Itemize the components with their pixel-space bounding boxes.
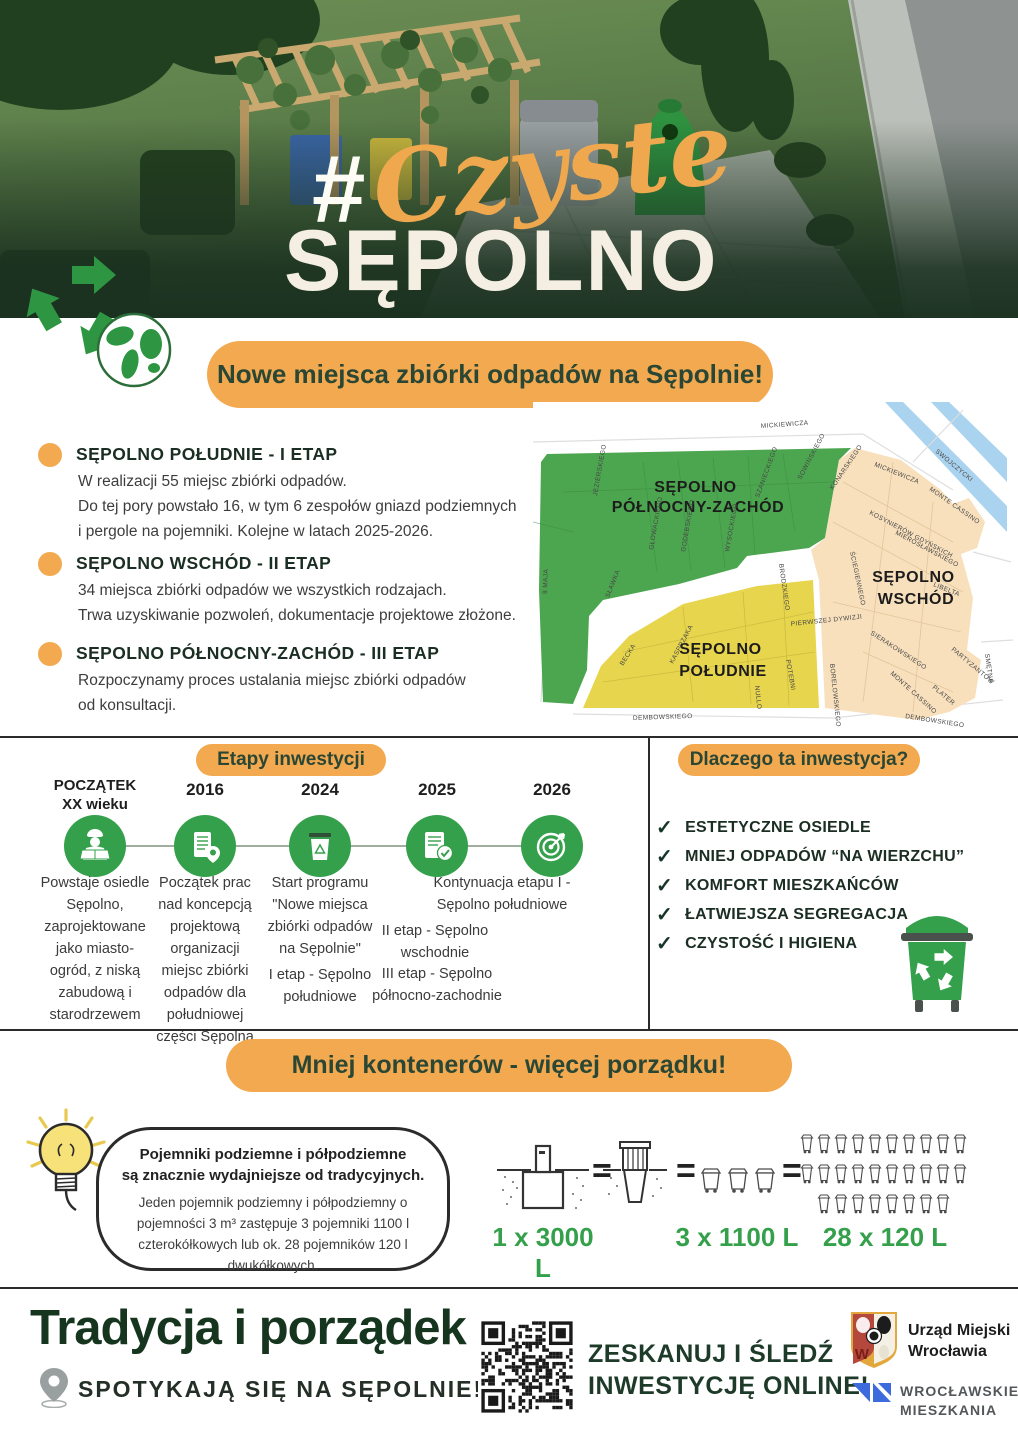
stage-2-body: 34 miejsca zbiórki odpadów we wszystkich… (78, 578, 516, 628)
timeline-title: Etapy inwestycji (196, 744, 386, 776)
stage-2-heading: SĘPOLNO WSCHÓD - II ETAP (76, 553, 331, 574)
stage-3-body: Rozpoczynamy proces ustalania miejsc zbi… (78, 668, 466, 718)
wroclaw-crest-logo: W (849, 1310, 899, 1370)
stage-bullet (38, 552, 62, 576)
less-title: Mniej kontenerów - więcej porządku! (226, 1039, 792, 1092)
equals-sign: = (676, 1152, 696, 1190)
why-item: ✓MNIEJ ODPADÓW “NA WIERZCHU” (656, 842, 986, 871)
timeline-text-2: Start programu "Nowe miejsca zbiórki odp… (252, 872, 388, 960)
scan-text: ZESKANUJ I ŚLEDŹ INWESTYCJĘ ONLINE! (588, 1338, 869, 1402)
check-icon: ✓ (656, 844, 673, 869)
location-pin-icon (36, 1366, 72, 1408)
green-wheelie-bin-icon (894, 902, 980, 1016)
label-3000l: 1 x 3000 L (483, 1222, 603, 1284)
timeline-text-3b: II etap - Sępolno wschodnie (370, 920, 500, 964)
banner-headline: Nowe miejsca zbiórki odpadów na Sępolnie… (207, 341, 773, 408)
check-icon: ✓ (656, 815, 673, 840)
why-item: ✓KOMFORT MIESZKAŃCÓW (656, 871, 986, 900)
check-icon: ✓ (656, 931, 673, 956)
bins-1100-group (702, 1169, 774, 1193)
poster: # Czyste SĘPOLNO Nowe miejsca zbiórki od… (0, 0, 1018, 1440)
construction-worker-icon (64, 815, 126, 877)
check-icon: ✓ (656, 873, 673, 898)
divider (0, 1029, 1018, 1031)
timeline-year-2: 2024 (260, 780, 380, 799)
label-1100l: 3 x 1100 L (675, 1222, 799, 1253)
svg-text:8 MAJA: 8 MAJA (542, 568, 550, 594)
page-title: SĘPOLNO (284, 218, 719, 304)
wroclawskie-mieszkania-logo (851, 1380, 893, 1408)
timeline-text-3: Kontynuacja etapu I - Sępolno południowe (412, 872, 592, 916)
timeline-year-1: 2016 (145, 780, 265, 799)
why-item: ✓ESTETYCZNE OSIEDLE (656, 813, 986, 842)
crest-letter: W (855, 1346, 870, 1363)
tip-bubble: Pojemniki podziemne i półpodziemne są zn… (96, 1127, 450, 1271)
timeline-text-3c: III etap - Sępolno północno-zachodnie (366, 963, 508, 1007)
globe-icon (98, 314, 170, 386)
equals-sign: = (782, 1152, 802, 1190)
divider-vertical (648, 737, 650, 1029)
qr-code (478, 1318, 576, 1416)
check-icon: ✓ (656, 902, 673, 927)
timeline-year-4: 2026 (492, 780, 612, 799)
capacity-comparison: = = = (495, 1128, 995, 1224)
stage-1-body: W realizacji 55 miejsc zbiórki odpadów. … (78, 469, 517, 544)
target-icon (521, 815, 583, 877)
timeline-year-3: 2025 (377, 780, 497, 799)
wm-logo-text: WROCŁAWSKIE MIESZKANIA (900, 1382, 1018, 1420)
underground-container-icon (497, 1146, 589, 1209)
checklist-icon (406, 815, 468, 877)
stage-bullet (38, 642, 62, 666)
stage-3-heading: SĘPOLNO PÓŁNOCNY-ZACHÓD - III ETAP (76, 643, 439, 664)
bins-120-group (802, 1135, 966, 1213)
semi-underground-container-icon (603, 1142, 667, 1202)
districts-map: SĘPOLNO PÓŁNOCNY-ZACHÓD SĘPOLNO WSCHÓD S… (533, 402, 1018, 735)
tip-bold-text: Pojemniki podziemne i półpodziemne są zn… (119, 1144, 427, 1186)
divider (0, 1287, 1018, 1289)
stage-1-heading: SĘPOLNO POŁUDNIE - I ETAP (76, 444, 338, 465)
city-logo-text: Urząd Miejski Wrocławia (908, 1320, 1010, 1362)
timeline-text-1: Początek prac nad koncepcją projektową o… (142, 872, 268, 1048)
label-120l: 28 x 120 L (820, 1222, 950, 1253)
footer-headline: Tradycja i porządek (30, 1304, 466, 1353)
footer-subline: SPOTYKAJĄ SIĘ NA SĘPOLNIE! (78, 1376, 483, 1403)
tip-body-text: Jeden pojemnik podziemny i półpodziemny … (125, 1192, 421, 1276)
timeline-year-0: POCZĄTEK XX wieku (35, 776, 155, 814)
recycle-globe-logo (16, 248, 188, 400)
document-location-icon (174, 815, 236, 877)
stage-bullet (38, 443, 62, 467)
divider (0, 736, 1018, 738)
why-title: Dlaczego ta inwestycja? (678, 744, 920, 776)
waste-bin-icon (289, 815, 351, 877)
